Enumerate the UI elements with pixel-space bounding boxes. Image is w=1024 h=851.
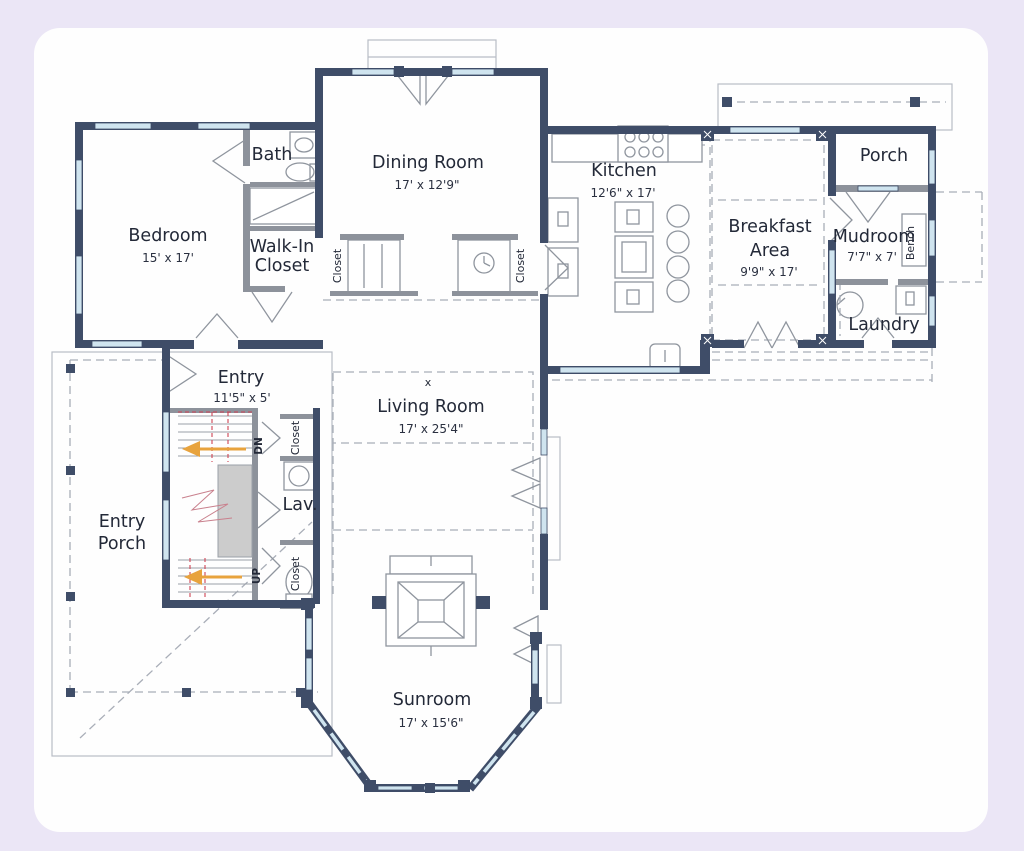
breakfast-area-dims: 9'9" x 17' (740, 265, 797, 279)
dining-closet-boxes (348, 240, 510, 292)
entry-porch-label-2: Porch (98, 534, 146, 554)
bedroom-dims: 15' x 17' (142, 251, 194, 265)
mudroom-label: Mudroom (833, 227, 916, 247)
porch-label: Porch (860, 146, 908, 166)
walkin-closet-label-2: Closet (255, 256, 310, 276)
deck-outlines (52, 40, 982, 756)
bedroom-label: Bedroom (128, 226, 207, 246)
closet-label-entry-top: Closet (289, 420, 302, 455)
kitchen-dims: 12'6" x 17' (590, 186, 655, 200)
walls (75, 66, 936, 793)
entry-porch-label-1: Entry (99, 512, 146, 532)
floor-plan-drawing: Bedroom 15' x 17' Bath Walk-In Closet Di… (0, 0, 1024, 851)
sunroom-label: Sunroom (393, 690, 472, 710)
living-room-center-mark: x (425, 376, 432, 389)
dining-room-dims: 17' x 12'9" (394, 178, 459, 192)
closet-label-dining-left: Closet (331, 248, 344, 283)
mudroom-dims: 7'7" x 7' (847, 250, 897, 264)
staircase (178, 412, 252, 600)
walkin-closet-label-1: Walk-In (250, 237, 314, 257)
entry-label: Entry (218, 368, 265, 388)
bath-label: Bath (252, 145, 293, 165)
room-labels: Bedroom 15' x 17' Bath Walk-In Closet Di… (98, 145, 920, 730)
kitchen-label: Kitchen (591, 161, 657, 181)
sunroom-dims: 17' x 15'6" (398, 716, 463, 730)
closet-label-entry-bottom: Closet (289, 556, 302, 591)
fireplace (386, 556, 476, 656)
closet-label-dining-right: Closet (514, 248, 527, 283)
stairs-down-label: DN (253, 437, 265, 455)
laundry-label: Laundry (848, 315, 919, 335)
breakfast-area-label-2: Area (750, 241, 790, 261)
dining-room-label: Dining Room (372, 153, 484, 173)
floor-plan-page: Bedroom 15' x 17' Bath Walk-In Closet Di… (0, 0, 1024, 851)
stairs-up-label: UP (251, 568, 263, 585)
bench-label: Bench (904, 226, 917, 260)
living-room-dims: 17' x 25'4" (398, 422, 463, 436)
entry-dims: 11'5" x 5' (213, 391, 270, 405)
lav-label: Lav. (282, 495, 317, 515)
breakfast-area-label-1: Breakfast (728, 217, 811, 237)
living-room-label: Living Room (377, 397, 484, 417)
